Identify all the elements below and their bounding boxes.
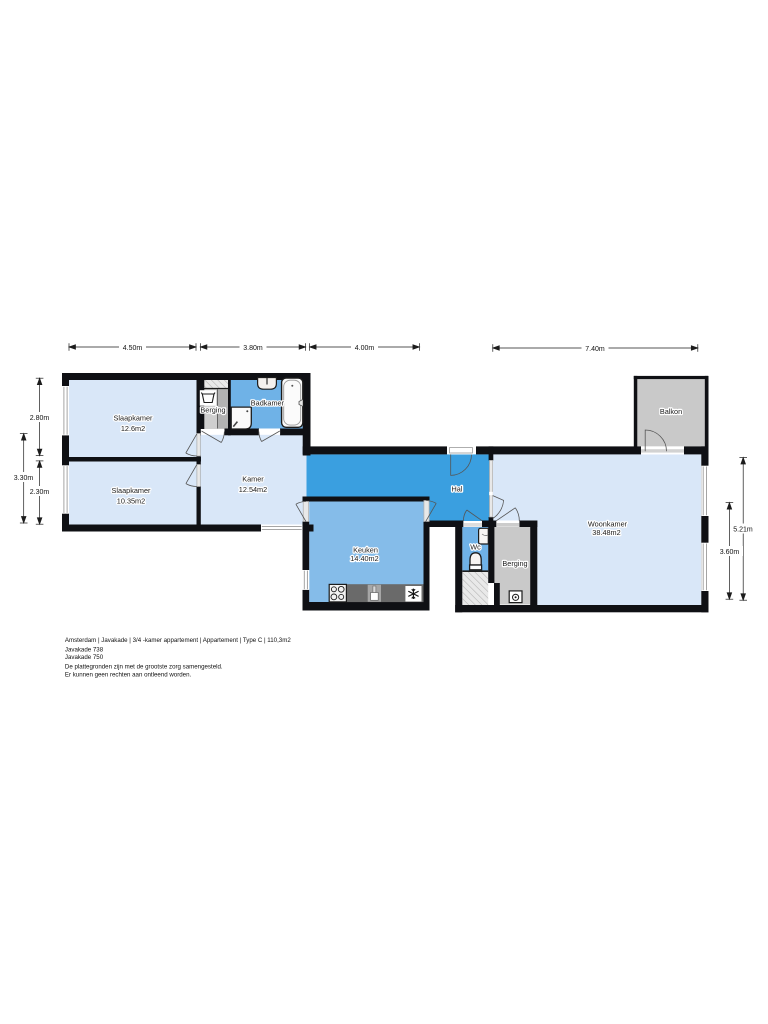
svg-text:Javakade 750: Javakade 750 [65, 654, 104, 661]
svg-text:Amsterdam | Javakade | 3/4 -ka: Amsterdam | Javakade | 3/4 -kamer appart… [65, 637, 291, 644]
svg-text:Badkamer: Badkamer [251, 399, 285, 408]
svg-text:Kamer: Kamer [242, 475, 264, 484]
svg-text:38.48m2: 38.48m2 [592, 528, 620, 537]
svg-text:Er kunnen geen rechten aan ont: Er kunnen geen rechten aan ontleend word… [65, 672, 192, 679]
svg-text:Berging: Berging [200, 406, 225, 415]
svg-text:3.80m: 3.80m [243, 345, 263, 352]
svg-text:4.00m: 4.00m [355, 345, 375, 352]
svg-text:Slaapkamer: Slaapkamer [112, 486, 152, 495]
svg-text:2.80m: 2.80m [30, 415, 50, 422]
svg-text:14.40m2: 14.40m2 [350, 554, 378, 563]
svg-text:10.35m2: 10.35m2 [117, 497, 145, 506]
svg-text:Balkon: Balkon [660, 407, 682, 416]
svg-text:4.50m: 4.50m [123, 345, 143, 352]
svg-text:Berging: Berging [502, 559, 527, 568]
svg-text:Javakade 738: Javakade 738 [65, 647, 104, 654]
svg-text:12.54m2: 12.54m2 [239, 485, 267, 494]
svg-text:3.30m: 3.30m [14, 475, 34, 482]
svg-text:5.21m: 5.21m [733, 527, 753, 534]
svg-text:Hal: Hal [452, 485, 463, 494]
svg-text:7.40m: 7.40m [585, 346, 605, 353]
svg-text:2.30m: 2.30m [30, 489, 50, 496]
svg-text:12.6m2: 12.6m2 [121, 424, 145, 433]
svg-text:Wc: Wc [470, 543, 481, 552]
svg-text:3.60m: 3.60m [720, 549, 740, 556]
svg-text:De plattegronden zijn met de g: De plattegronden zijn met de grootste zo… [65, 664, 223, 671]
svg-text:Slaapkamer: Slaapkamer [114, 414, 154, 423]
